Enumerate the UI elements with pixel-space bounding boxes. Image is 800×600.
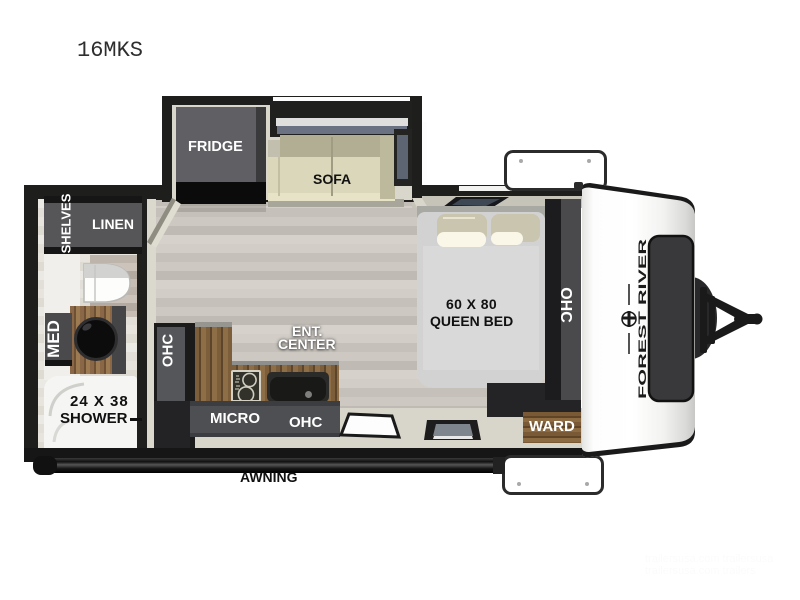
svg-text:FOREST RIVER: FOREST RIVER — [637, 239, 649, 399]
